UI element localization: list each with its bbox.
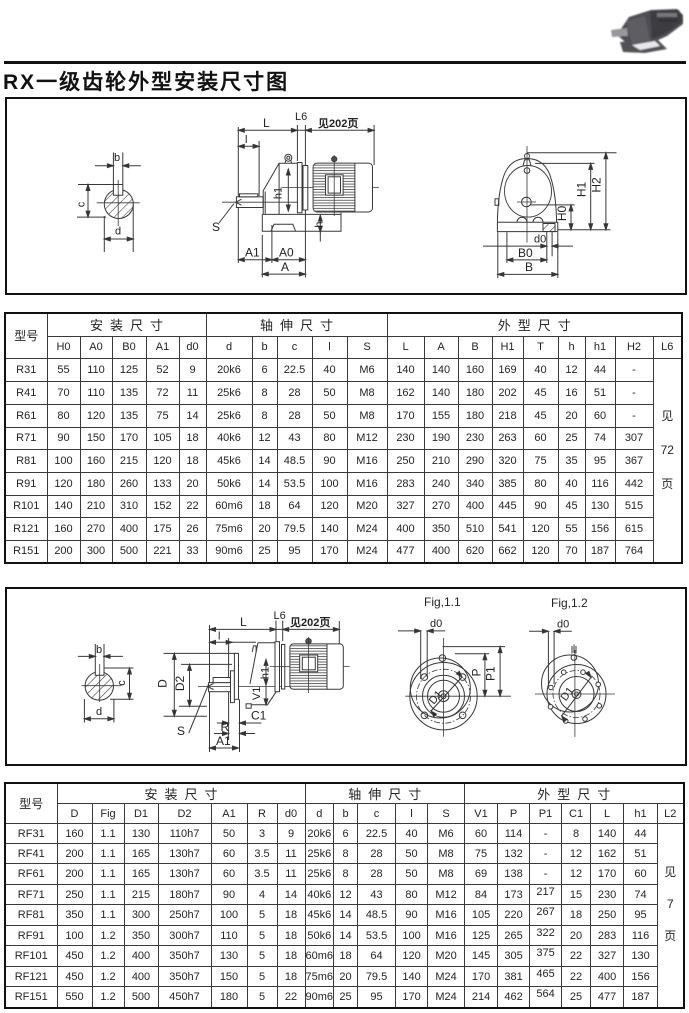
svg-text:d0: d0 [557, 619, 569, 631]
svg-text:h: h [314, 221, 326, 227]
svg-text:A: A [281, 260, 289, 274]
svg-text:L: L [263, 116, 270, 130]
svg-text:B0: B0 [518, 246, 533, 260]
svg-text:h1: h1 [260, 667, 272, 679]
svg-text:b: b [114, 152, 120, 164]
svg-text:l: l [245, 134, 247, 146]
svg-text:B: B [525, 260, 533, 274]
svg-text:D: D [156, 679, 170, 688]
svg-text:d0: d0 [534, 234, 546, 246]
svg-text:R: R [221, 720, 230, 734]
svg-text:L: L [240, 615, 247, 629]
svg-text:P1: P1 [484, 666, 498, 681]
svg-text:H0: H0 [555, 206, 569, 222]
svg-text:d: d [115, 226, 121, 238]
svg-text:b: b [96, 644, 102, 656]
svg-text:P: P [470, 668, 484, 676]
svg-text:L6: L6 [295, 111, 307, 123]
svg-text:L6: L6 [274, 610, 286, 622]
svg-text:H1: H1 [575, 182, 589, 198]
svg-text:A1: A1 [245, 246, 260, 260]
svg-text:Fig,1.1: Fig,1.1 [424, 595, 461, 609]
svg-text:见202页: 见202页 [290, 616, 330, 629]
svg-text:A0: A0 [279, 246, 294, 260]
svg-text:c: c [76, 201, 88, 207]
svg-text:c: c [116, 680, 128, 686]
svg-text:H2: H2 [590, 177, 604, 193]
svg-text:V1: V1 [251, 687, 263, 700]
svg-text:d0: d0 [430, 618, 442, 630]
svg-text:C1: C1 [251, 709, 267, 723]
svg-text:见202页: 见202页 [318, 117, 358, 130]
svg-text:l: l [218, 631, 220, 643]
svg-text:d: d [96, 706, 102, 718]
svg-text:A1: A1 [216, 734, 231, 748]
svg-text:S: S [177, 724, 185, 738]
svg-text:S: S [212, 220, 220, 234]
svg-text:Fig,1.2: Fig,1.2 [551, 596, 588, 610]
svg-text:D2: D2 [173, 676, 187, 692]
svg-text:h1: h1 [273, 187, 285, 199]
